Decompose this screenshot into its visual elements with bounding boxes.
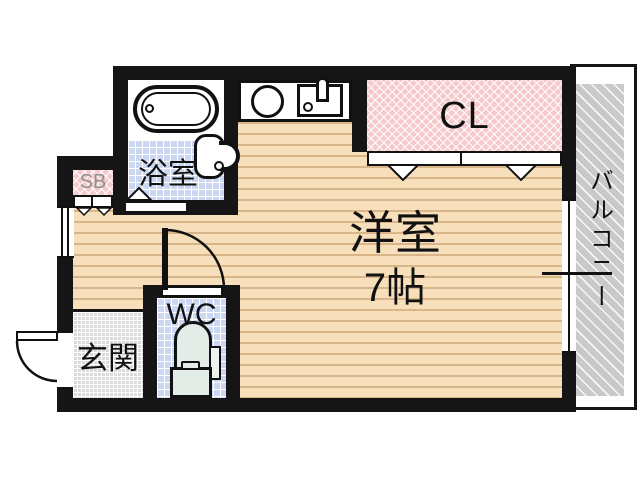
entrance-door-arc-icon bbox=[10, 325, 70, 390]
exterior-corner bbox=[73, 80, 113, 156]
window-glass-line bbox=[568, 201, 570, 351]
stove-burner-icon bbox=[251, 85, 284, 118]
wall-left-upper bbox=[57, 156, 113, 170]
entrance-label: 玄関 bbox=[73, 322, 143, 388]
main-room-size-label: 7帖 bbox=[310, 260, 480, 308]
shoebox-label: SB bbox=[73, 170, 113, 195]
window-glass-line bbox=[67, 208, 69, 256]
bathroom-door bbox=[124, 201, 188, 213]
bathroom-label: 浴室 bbox=[128, 142, 208, 200]
closet-door-triangle-icon bbox=[504, 164, 538, 181]
wc-wall-right bbox=[226, 285, 240, 398]
closet-door-triangle-icon bbox=[386, 164, 420, 181]
wall-bottom bbox=[57, 398, 576, 412]
closet-label: CL bbox=[367, 80, 562, 152]
kitchen-faucet-icon bbox=[316, 77, 329, 102]
wall-top bbox=[113, 66, 576, 80]
sink-drain-icon bbox=[303, 102, 313, 112]
window-glass-line bbox=[61, 208, 63, 256]
floorplan-canvas: バルコニー bbox=[0, 0, 640, 480]
bathtub-drain-icon bbox=[145, 104, 154, 113]
toilet-handle-icon bbox=[181, 361, 200, 370]
main-room-label: 洋室 bbox=[310, 203, 480, 257]
closet-wall-left bbox=[352, 80, 367, 152]
wc-door-arc-icon bbox=[160, 225, 230, 295]
window-center-tick bbox=[542, 272, 612, 275]
window-icon bbox=[57, 206, 74, 258]
washbasin-drain-icon bbox=[214, 161, 224, 171]
wc-wall-left bbox=[143, 285, 157, 398]
bathtub-icon bbox=[133, 85, 219, 133]
balcony-label: バルコニー bbox=[574, 84, 624, 396]
balcony-sliding-window-icon bbox=[562, 199, 576, 353]
shoebox-door-triangle-icon bbox=[76, 207, 92, 216]
toilet-tank-icon bbox=[170, 367, 212, 398]
shoebox-door-triangle-icon bbox=[96, 207, 112, 216]
wc-label: WC bbox=[157, 298, 226, 332]
